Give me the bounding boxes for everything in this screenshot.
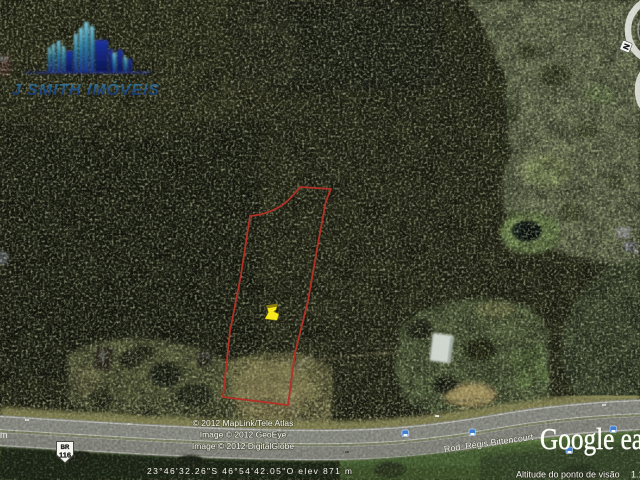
svg-text:Google ea: Google ea [540,421,640,456]
svg-text:Image © 2012 DigitalGlobe: Image © 2012 DigitalGlobe [192,441,294,451]
svg-text:© 2012 MapLink/Tele Atlas: © 2012 MapLink/Tele Atlas [193,418,294,428]
svg-text:1.18: 1.18 [631,470,640,480]
svg-text:J SMITH IMÓVEIS: J SMITH IMÓVEIS [12,80,160,99]
svg-text:Altitude do ponto de visão: Altitude do ponto de visão [516,470,620,480]
svg-text:116: 116 [59,451,71,460]
svg-text:m: m [0,430,8,440]
svg-text:Image © 2012 GeoEye: Image © 2012 GeoEye [200,430,287,440]
